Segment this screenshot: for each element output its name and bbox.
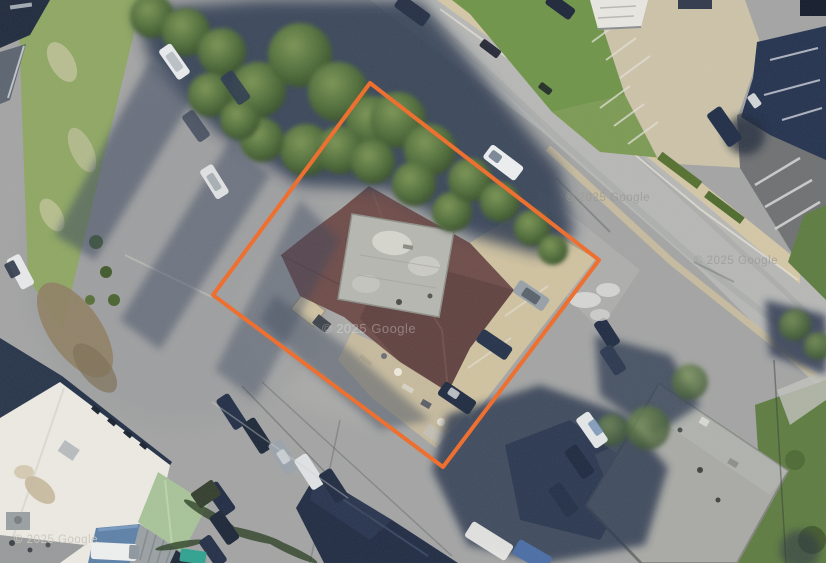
photo-grain-overlay <box>0 0 826 563</box>
watermark-road-lower: © 2025 Google <box>694 255 778 267</box>
watermark-bottom-left: © 2025 Google <box>14 534 98 546</box>
watermark-road-upper: © 2025 Google <box>566 192 650 204</box>
satellite-map-canvas[interactable]: © 2025 Google © 2025 Google © 2025 Googl… <box>0 0 826 563</box>
watermark-center: © 2025 Google <box>322 321 416 336</box>
